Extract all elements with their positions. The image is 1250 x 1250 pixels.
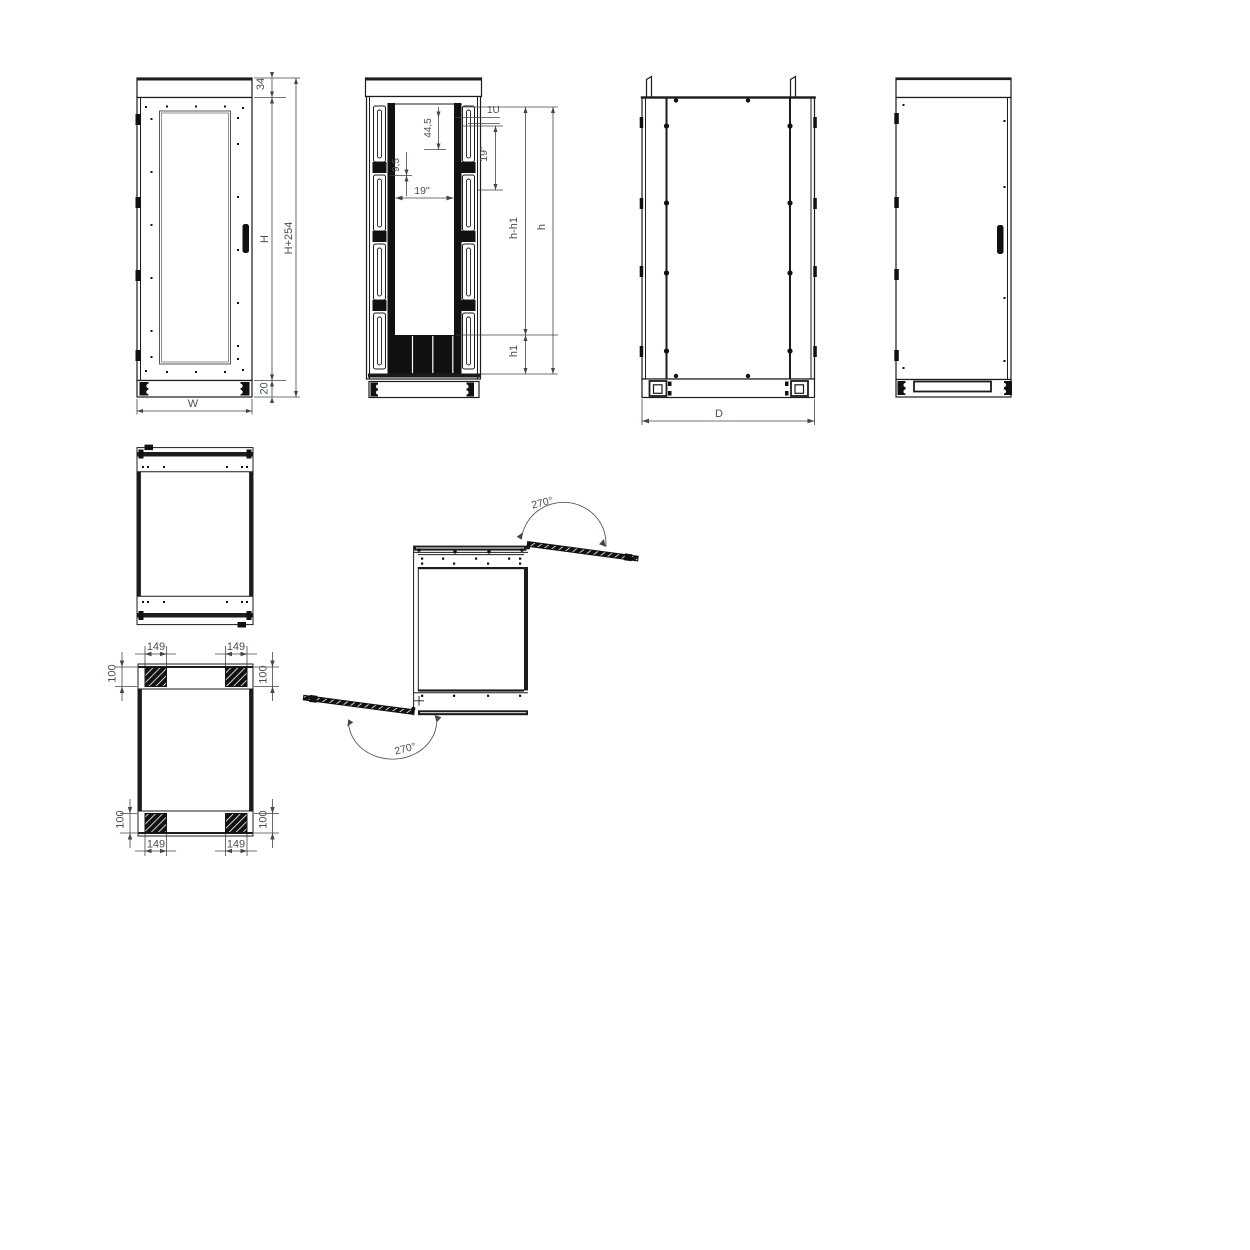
- svg-text:W: W: [188, 398, 199, 410]
- svg-text:100: 100: [258, 665, 270, 683]
- svg-text:H+254: H+254: [283, 222, 295, 255]
- svg-text:149: 149: [147, 641, 165, 653]
- svg-text:20: 20: [259, 382, 271, 394]
- svg-text:149: 149: [227, 641, 245, 653]
- svg-text:100: 100: [115, 810, 127, 828]
- svg-text:100: 100: [258, 810, 270, 828]
- svg-text:h: h: [536, 224, 548, 230]
- svg-text:H: H: [259, 235, 271, 243]
- svg-text:19": 19": [478, 146, 490, 162]
- svg-text:149: 149: [227, 839, 245, 851]
- svg-text:19": 19": [414, 185, 430, 197]
- svg-text:100: 100: [107, 664, 119, 682]
- svg-text:h-h1: h-h1: [508, 217, 520, 239]
- svg-text:34: 34: [255, 78, 267, 90]
- svg-text:149: 149: [147, 839, 165, 851]
- svg-text:D: D: [715, 408, 723, 420]
- svg-text:9,5: 9,5: [391, 158, 402, 172]
- svg-text:h1: h1: [508, 345, 520, 357]
- svg-text:270°: 270°: [530, 495, 554, 512]
- svg-text:44,5: 44,5: [423, 118, 434, 138]
